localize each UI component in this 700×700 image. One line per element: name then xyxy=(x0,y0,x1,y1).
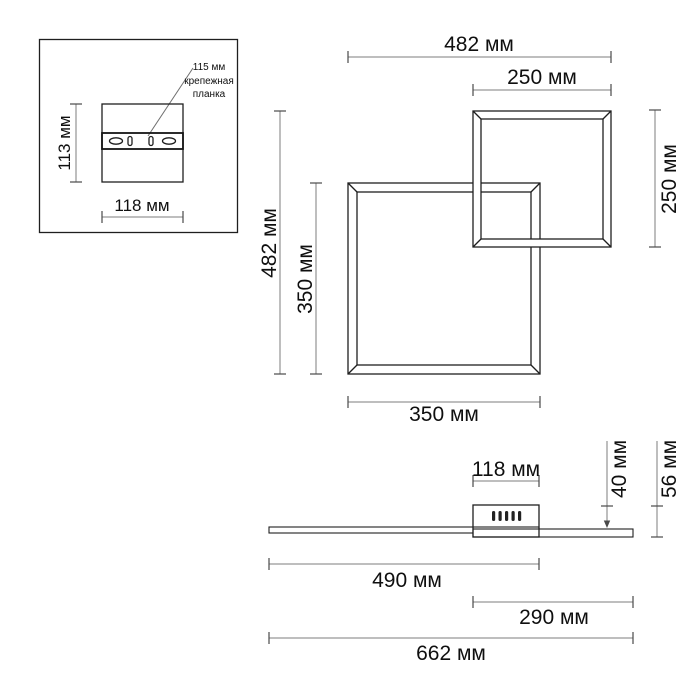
mounting-slot-left-icon xyxy=(110,138,123,144)
dimension-label: 250 мм xyxy=(507,66,577,89)
large-square-band xyxy=(348,183,540,374)
dim-small-square-width: 250 мм xyxy=(473,66,611,96)
callout-text-line2: крепежная xyxy=(184,76,234,87)
large-square-inner xyxy=(357,192,531,365)
dimension-label: 350 мм xyxy=(409,403,479,426)
technical-drawing: 115 мм крепежная планка 113 мм 118 мм xyxy=(0,0,700,700)
callout-size-label: 115 мм xyxy=(193,62,226,73)
dim-canopy-height: 40 мм xyxy=(601,440,631,528)
small-square-inner xyxy=(481,119,603,239)
dim-plate-height: 113 мм xyxy=(55,104,82,182)
dim-top-total-width: 482 мм xyxy=(348,33,611,63)
mounting-bar xyxy=(102,133,183,149)
small-square-band xyxy=(473,111,611,247)
dim-large-square-width: 350 мм xyxy=(348,396,540,426)
dim-plate-width: 118 мм xyxy=(102,196,183,223)
dimension-label: 56 мм xyxy=(658,440,681,498)
dimension-label: 290 мм xyxy=(519,606,589,629)
dimension-label: 662 мм xyxy=(416,642,486,665)
dimension-label: 250 мм xyxy=(658,144,681,214)
dimension-label: 118 мм xyxy=(114,196,169,215)
dimension-arrow xyxy=(604,521,610,529)
vent-slot-icon xyxy=(499,511,502,521)
profile-bar-right xyxy=(473,529,633,537)
side-view: 118 мм 40 мм 56 мм 490 мм 290 мм xyxy=(269,440,681,665)
vent-slot-icon xyxy=(512,511,515,521)
drawing-page: 115 мм крепежная планка 113 мм 118 мм xyxy=(0,0,700,700)
vent-slot-icon xyxy=(505,511,508,521)
dimension-label: 490 мм xyxy=(372,569,442,592)
large-square-outer xyxy=(348,183,540,374)
inset-mounting-plate-view: 115 мм крепежная планка 113 мм 118 мм xyxy=(40,40,238,233)
callout-text-line3: планка xyxy=(193,89,226,100)
mounting-plate-outline xyxy=(102,104,183,182)
dimension-label: 482 мм xyxy=(258,208,281,278)
mounting-hole-left-icon xyxy=(128,137,132,146)
small-square-outer xyxy=(473,111,611,247)
dimension-label: 350 мм xyxy=(294,244,317,314)
dimension-label: 482 мм xyxy=(444,33,514,56)
dim-total-height: 56 мм xyxy=(651,440,681,537)
vent-slot-icon xyxy=(492,511,495,521)
dim-total-width: 662 мм xyxy=(269,632,633,665)
mounting-hole-right-icon xyxy=(149,137,153,146)
dim-small-square-height: 250 мм xyxy=(649,110,681,247)
dimension-label: 40 мм xyxy=(608,440,631,498)
dim-left-span: 490 мм xyxy=(269,558,539,592)
vent-slot-icon xyxy=(518,511,521,521)
front-view: 482 мм 250 мм 482 мм 350 мм 250 xyxy=(258,33,681,426)
dim-right-span: 290 мм xyxy=(473,596,633,629)
dim-canopy-width: 118 мм xyxy=(472,458,540,487)
dimension-label: 113 мм xyxy=(55,115,74,170)
dim-large-square-height: 350 мм xyxy=(294,183,322,374)
dim-left-total-height: 482 мм xyxy=(258,111,286,374)
mounting-slot-right-icon xyxy=(163,138,176,144)
dimension-label: 118 мм xyxy=(472,458,540,481)
